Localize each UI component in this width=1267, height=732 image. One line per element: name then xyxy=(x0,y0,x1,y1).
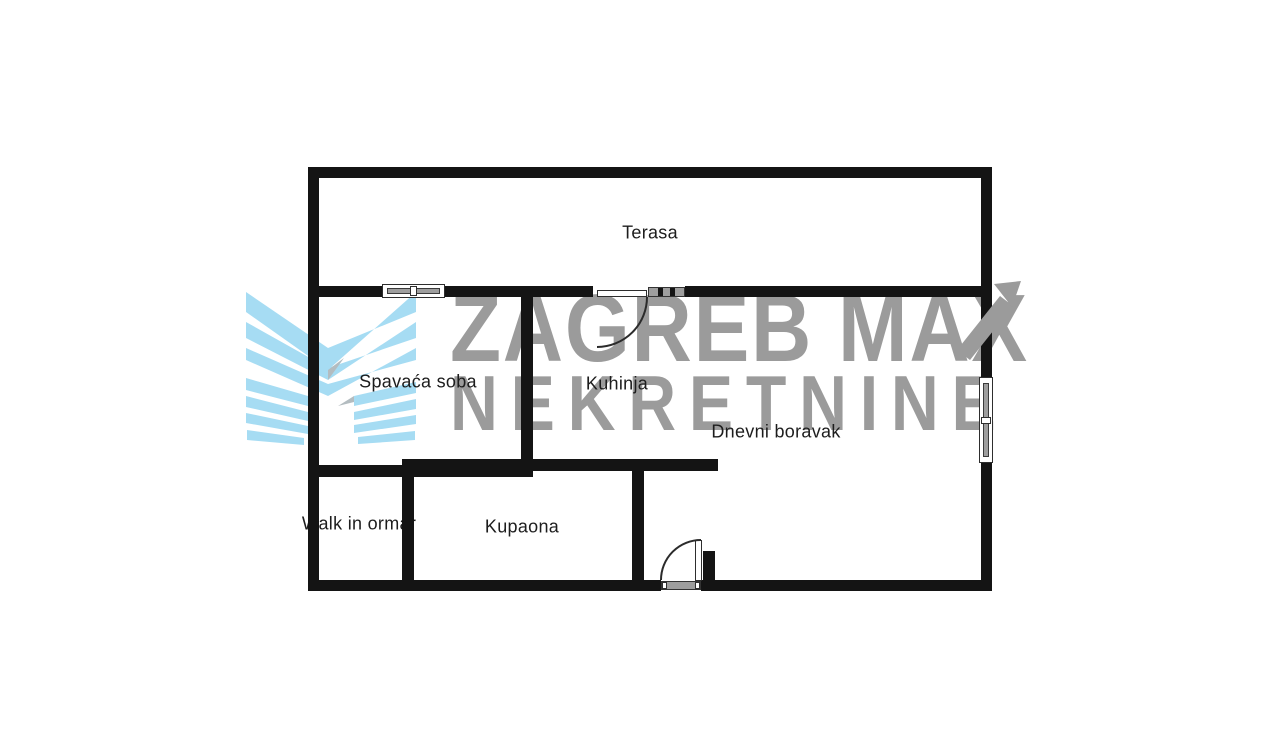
arrow-shaft xyxy=(957,296,1013,360)
watermark-arrow-icon xyxy=(0,0,1267,732)
floor-plan-image: ZAGREB MAX NEKRETNINE Terasa Spavaća sob… xyxy=(0,0,1267,732)
